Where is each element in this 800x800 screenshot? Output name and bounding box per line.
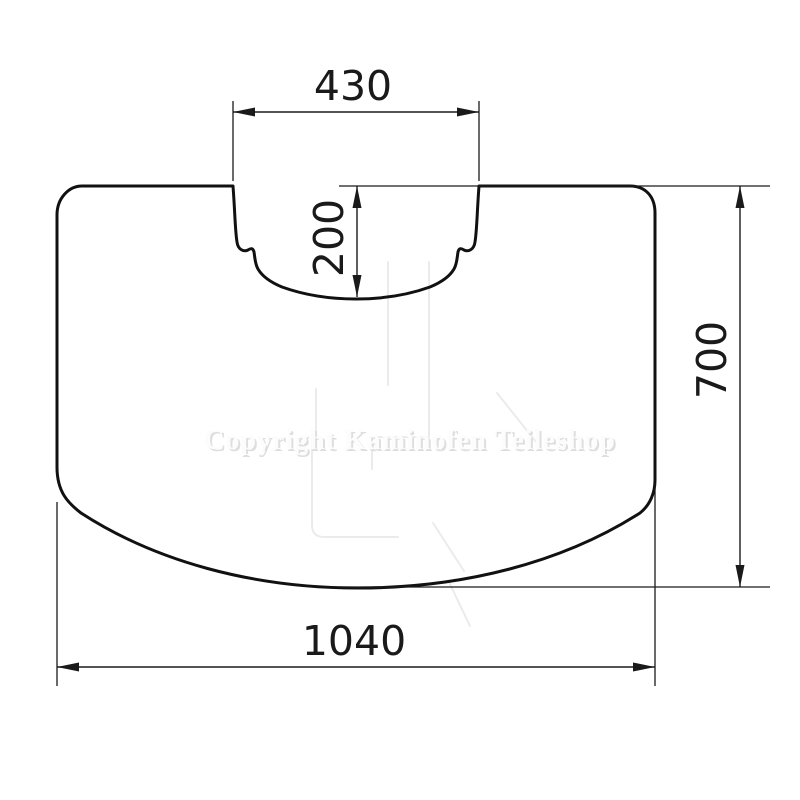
dimension-label-cutout-width: 430 [314,62,392,110]
arrowhead-up-icon [353,186,362,208]
dimension-label-plate-width: 1040 [302,617,406,665]
dimension-cutout-depth: 200 [305,186,362,297]
watermark-logo-line [449,582,470,626]
part-fill [57,186,655,588]
arrowhead-up-icon [736,186,745,208]
dimension-label-plate-height: 700 [688,321,736,399]
arrowhead-down-icon [736,565,745,587]
dimension-drawing: Copyright Kaminofen Teileshop Copyright … [0,0,800,800]
technical-drawing-canvas: Copyright Kaminofen Teileshop Copyright … [0,0,800,800]
dimension-cutout-width: 430 [233,62,479,181]
dimension-label-cutout-depth: 200 [305,199,353,277]
arrowhead-left-icon [233,108,255,117]
arrowhead-left-icon [57,663,79,672]
arrowhead-down-icon [353,275,362,297]
watermark-text-front: Copyright Kaminofen Teileshop [204,425,616,456]
arrowhead-right-icon [633,663,655,672]
dimension-plate-height: 700 [688,186,745,587]
arrowhead-right-icon [457,108,479,117]
watermark-text: Copyright Kaminofen Teileshop Copyright … [204,425,618,458]
